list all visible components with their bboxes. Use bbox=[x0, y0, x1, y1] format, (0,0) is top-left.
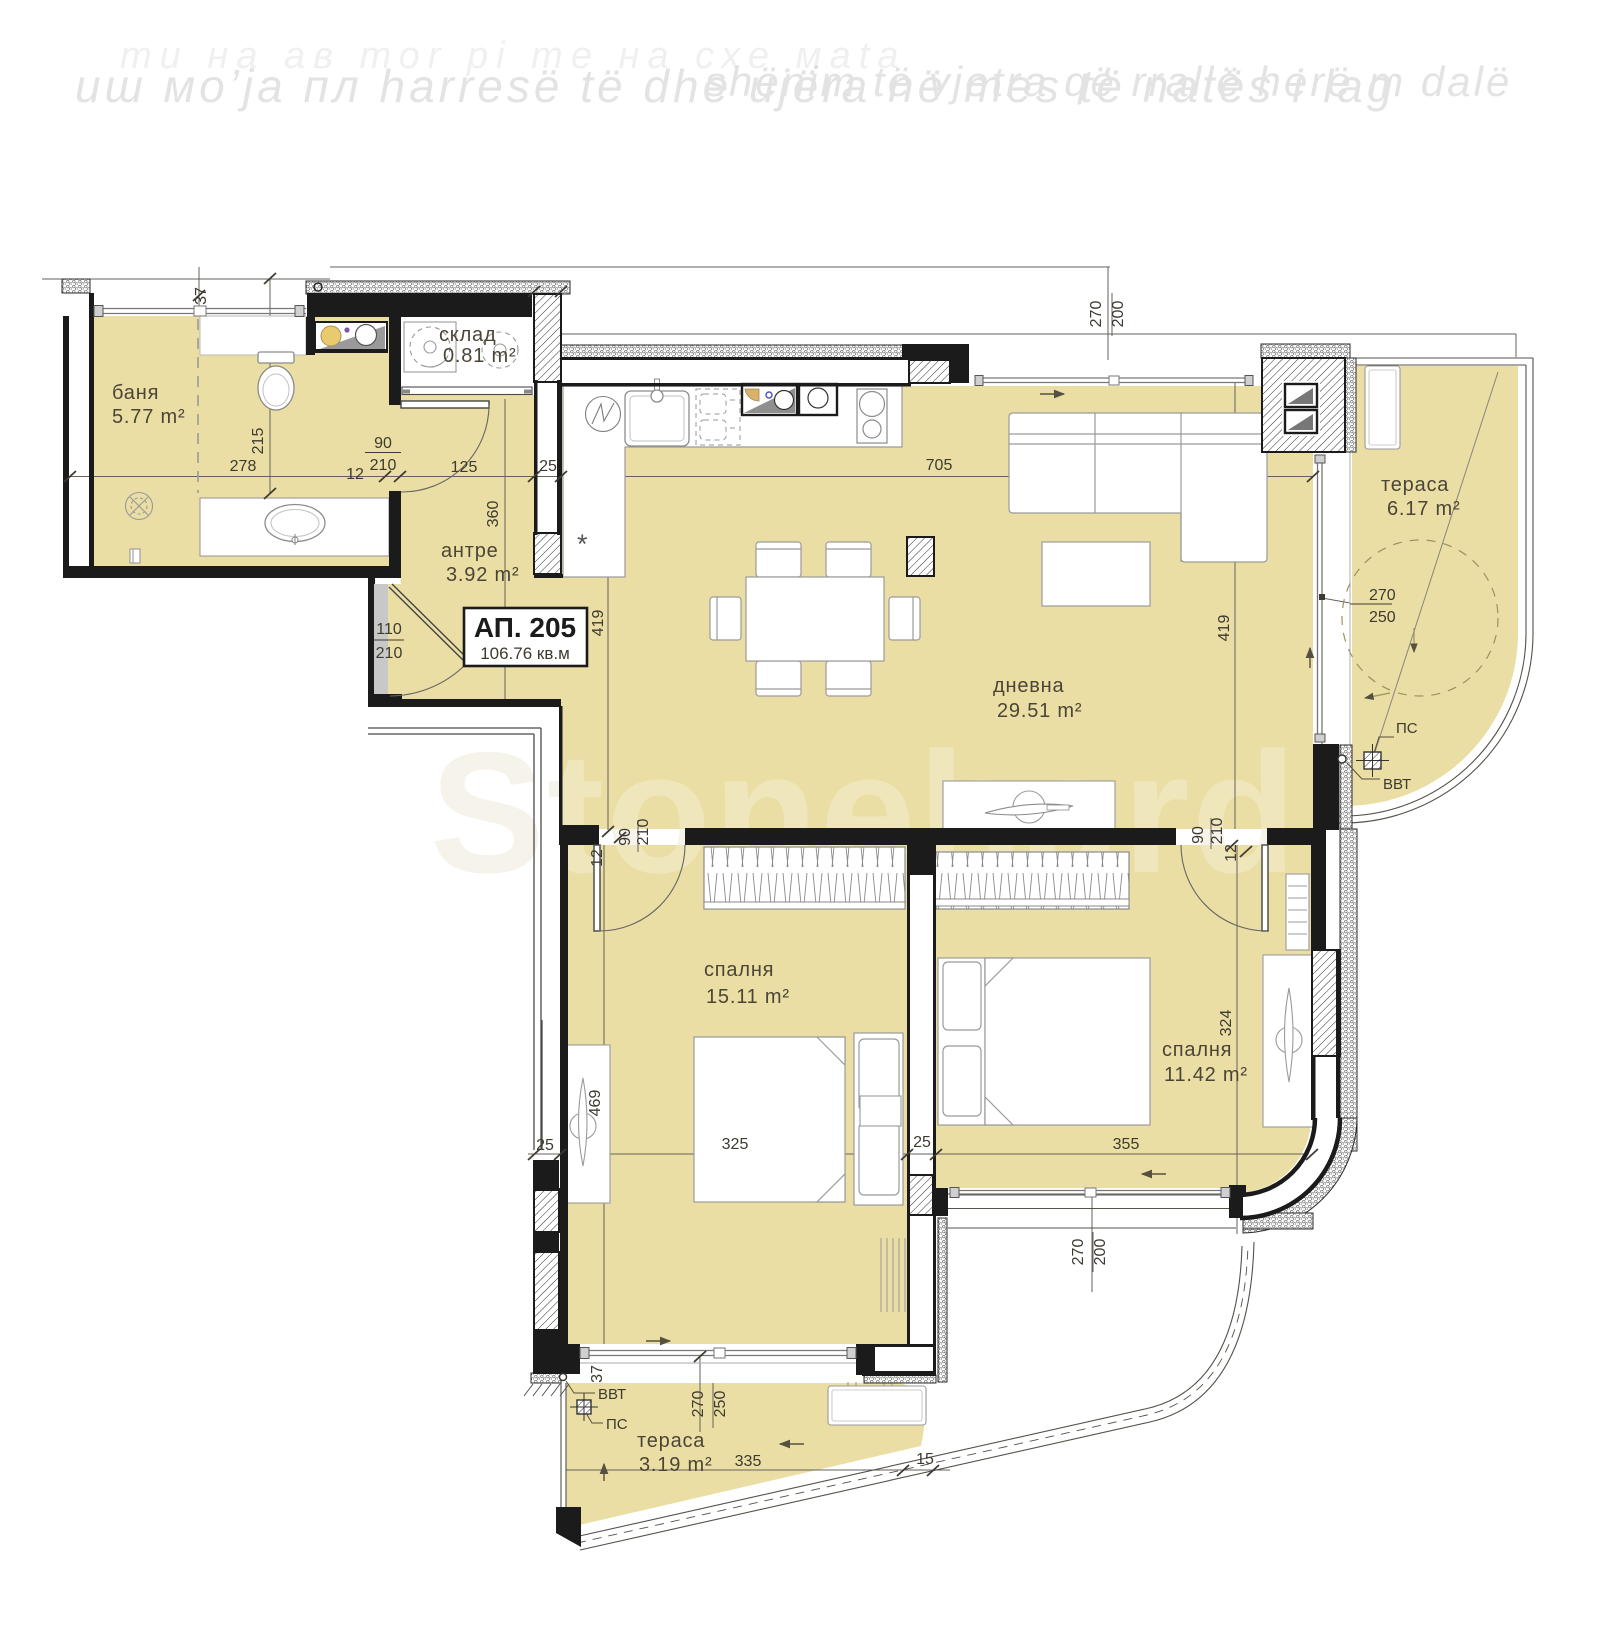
svg-text:12: 12 bbox=[1223, 844, 1240, 862]
svg-text:спалня: спалня bbox=[704, 959, 774, 981]
svg-text:210: 210 bbox=[635, 819, 652, 846]
svg-text:270: 270 bbox=[1070, 1239, 1087, 1266]
svg-text:11.42 m²: 11.42 m² bbox=[1164, 1064, 1248, 1086]
svg-text:6.17 m²: 6.17 m² bbox=[1387, 498, 1460, 520]
svg-text:469: 469 bbox=[587, 1090, 604, 1117]
svg-text:705: 705 bbox=[926, 457, 953, 474]
svg-text:25: 25 bbox=[539, 458, 557, 475]
svg-text:12: 12 bbox=[346, 466, 364, 483]
svg-text:37: 37 bbox=[193, 287, 210, 305]
svg-text:29.51 m²: 29.51 m² bbox=[997, 700, 1082, 722]
svg-text:90: 90 bbox=[1190, 826, 1207, 844]
svg-text:ВВТ: ВВТ bbox=[1383, 776, 1411, 793]
svg-text:25: 25 bbox=[913, 1134, 931, 1151]
svg-text:3.92 m²: 3.92 m² bbox=[446, 564, 519, 586]
svg-text:15.11 m²: 15.11 m² bbox=[706, 986, 790, 1008]
svg-text:тераса: тераса bbox=[1381, 474, 1449, 496]
svg-text:278: 278 bbox=[230, 458, 257, 475]
svg-text:419: 419 bbox=[590, 610, 607, 637]
svg-text:325: 325 bbox=[722, 1136, 749, 1153]
svg-text:антре: антре bbox=[441, 540, 499, 562]
svg-text:110: 110 bbox=[376, 621, 402, 638]
svg-text:270: 270 bbox=[1088, 301, 1105, 328]
svg-text:12: 12 bbox=[589, 849, 606, 867]
svg-text:210: 210 bbox=[370, 457, 397, 474]
svg-text:215: 215 bbox=[250, 428, 267, 455]
svg-text:324: 324 bbox=[1218, 1010, 1235, 1037]
svg-text:тераса: тераса bbox=[637, 1430, 705, 1452]
svg-text:спалня: спалня bbox=[1162, 1039, 1232, 1061]
svg-text:270: 270 bbox=[1369, 587, 1396, 604]
svg-text:335: 335 bbox=[735, 1453, 762, 1470]
svg-text:ти на ав тоr рi те нa схе мata: ти на ав тоr рi те нa схе мata bbox=[120, 35, 906, 77]
svg-text:355: 355 bbox=[1113, 1136, 1140, 1153]
svg-text:0.81 m²: 0.81 m² bbox=[443, 345, 516, 367]
svg-text:210: 210 bbox=[376, 645, 403, 662]
svg-text:360: 360 bbox=[485, 501, 502, 528]
svg-text:25: 25 bbox=[536, 1137, 554, 1154]
svg-text:200: 200 bbox=[1110, 301, 1127, 328]
svg-text:200: 200 bbox=[1092, 1239, 1109, 1266]
svg-text:3.19 m²: 3.19 m² bbox=[639, 1454, 712, 1476]
svg-text:склад: склад bbox=[439, 324, 496, 346]
svg-text:ВВТ: ВВТ bbox=[598, 1386, 626, 1403]
svg-text:баня: баня bbox=[112, 382, 159, 404]
svg-text:АП. 205: АП. 205 bbox=[474, 612, 576, 643]
svg-text:5.77 m²: 5.77 m² bbox=[112, 406, 185, 428]
svg-text:90: 90 bbox=[374, 435, 392, 452]
svg-text:210: 210 bbox=[1209, 818, 1226, 845]
svg-text:90: 90 bbox=[617, 828, 634, 846]
svg-text:125: 125 bbox=[451, 459, 478, 476]
svg-text:*: * bbox=[577, 529, 588, 559]
svg-text:ПС: ПС bbox=[606, 1416, 628, 1433]
svg-text:15: 15 bbox=[916, 1451, 934, 1468]
svg-text:419: 419 bbox=[1216, 615, 1233, 642]
svg-text:250: 250 bbox=[1369, 609, 1396, 626]
svg-text:дневна: дневна bbox=[993, 675, 1065, 697]
svg-text:270: 270 bbox=[690, 1391, 707, 1418]
svg-text:106.76 кв.м: 106.76 кв.м bbox=[480, 644, 570, 663]
svg-text:37: 37 bbox=[589, 1365, 606, 1383]
svg-text:ПС: ПС bbox=[1396, 720, 1418, 737]
svg-text:250: 250 bbox=[712, 1391, 729, 1418]
